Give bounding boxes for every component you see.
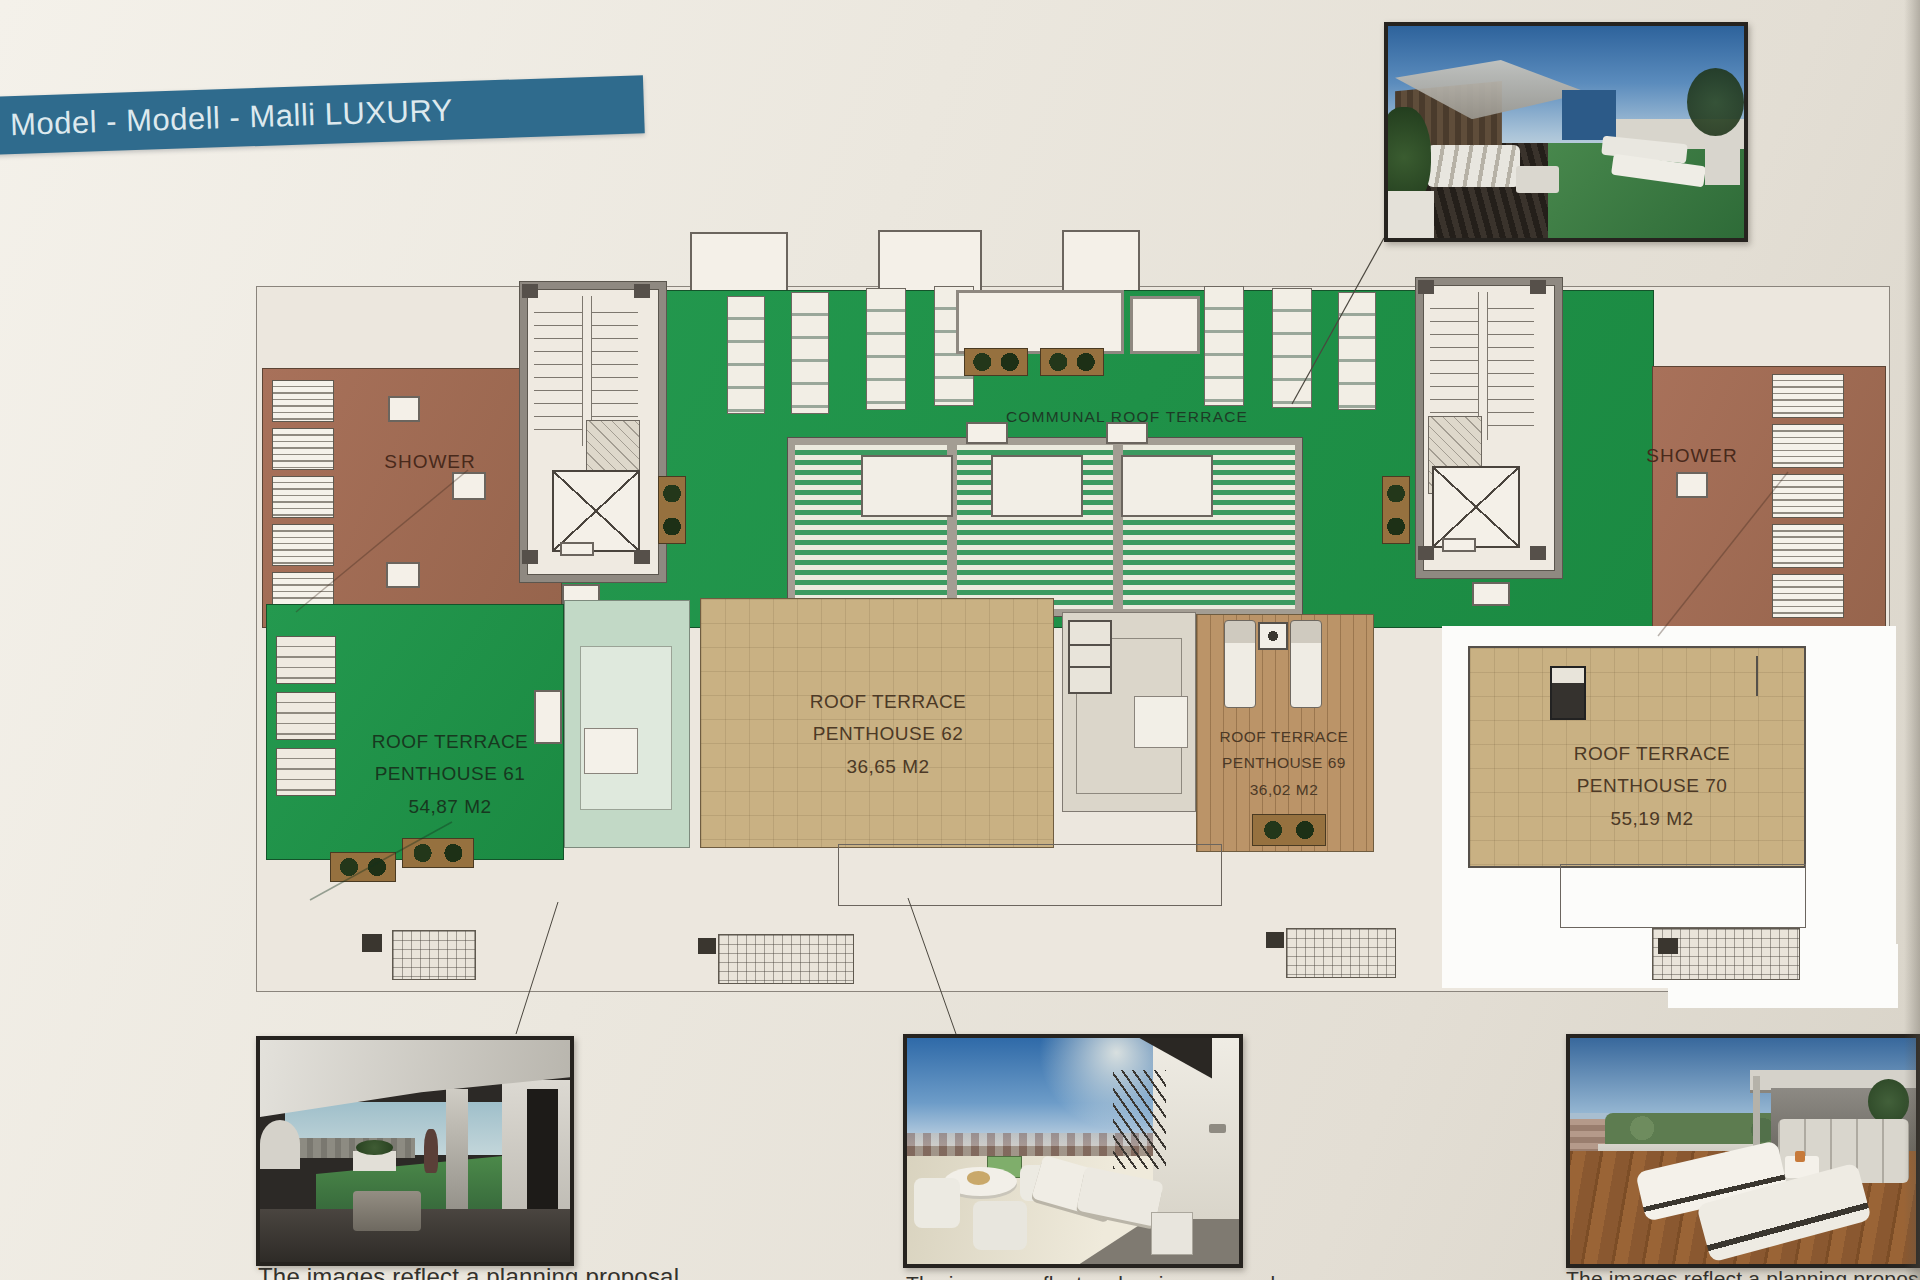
penthouse-69-label: ROOF TERRACE PENTHOUSE 69 36,02 M2 [1196, 724, 1372, 803]
column [1418, 280, 1434, 294]
skylight-slats [276, 636, 336, 684]
penthouse-70-label: ROOF TERRACE PENTHOUSE 70 55,19 M2 [1530, 738, 1774, 835]
title-banner-label: Model - Modell - Malli LUXURY [10, 93, 454, 144]
chair [914, 1178, 960, 1228]
chair [973, 1201, 1026, 1251]
tent-shape [260, 1120, 300, 1169]
deck-vent-grille [1772, 524, 1844, 568]
deck-vent-grille [1772, 574, 1844, 618]
elevator-right [1432, 466, 1520, 548]
vent-shaft [1550, 666, 1586, 720]
roof-bulkhead [1130, 296, 1200, 354]
deck-vent-grille [1772, 424, 1844, 468]
communal-pergola [788, 438, 1302, 616]
deck-hatch [1676, 472, 1708, 498]
penthouse-61-label: ROOF TERRACE PENTHOUSE 61 54,87 M2 [330, 726, 570, 823]
deck-vent-grille [272, 476, 334, 518]
photo-covered-terrace-render [256, 1036, 574, 1266]
column [634, 284, 650, 298]
planter-box [964, 348, 1028, 376]
plant [1868, 1079, 1910, 1124]
roof-hatch [1134, 696, 1188, 748]
deck-hatch [1472, 582, 1510, 606]
pergola-skylight [1121, 455, 1213, 517]
wall-lamp [1209, 1124, 1226, 1133]
pergola-vent [1106, 422, 1148, 444]
column [522, 284, 538, 298]
plan-outline-step [838, 844, 1222, 906]
skylight-slats [727, 296, 765, 414]
deck-vent-grille [272, 380, 334, 422]
ladder-symbol [1068, 620, 1112, 694]
deck-hatch [386, 562, 420, 588]
drain-box [362, 934, 382, 952]
plan-outline-step [1560, 864, 1806, 928]
photo-communal-terrace-render [1384, 22, 1748, 242]
planter-box [1252, 814, 1326, 846]
ottoman [353, 1191, 421, 1231]
drain-box [1658, 938, 1678, 954]
skylight-slats [1204, 286, 1244, 406]
shower-right-label: SHOWER [1612, 440, 1772, 472]
pergola-skylight [861, 455, 953, 517]
drain-box [698, 938, 716, 954]
outdoor-sofa [1427, 145, 1520, 187]
pergola-vent [966, 422, 1008, 444]
deck-vent-grille [1772, 374, 1844, 418]
title-banner: Model - Modell - Malli LUXURY [0, 75, 645, 155]
skylight-slats [1338, 292, 1376, 410]
column [634, 550, 650, 564]
deck-hatch [388, 396, 420, 422]
plant [1687, 68, 1744, 136]
planter-box [658, 476, 686, 544]
roof-hatch [584, 728, 638, 774]
column [1530, 546, 1546, 560]
column [446, 1089, 468, 1222]
photo-wood-deck-render [1566, 1034, 1920, 1268]
drain-grille [718, 934, 854, 984]
elevator-left [552, 470, 640, 552]
photo-sunny-terrace-render [903, 1034, 1243, 1268]
elevator-door [560, 542, 594, 556]
drain-box [1266, 932, 1284, 948]
sun-lounger-symbol [1224, 620, 1256, 708]
drain-grille [1286, 928, 1396, 978]
deck-vent-grille [272, 524, 334, 566]
person [424, 1129, 438, 1173]
roof-skylight-box [690, 232, 788, 298]
deck-vent-grille [1772, 474, 1844, 518]
vent-fan-symbol [1258, 622, 1288, 650]
column [1530, 280, 1546, 294]
skylight-slats [276, 748, 336, 796]
drain-grille [1652, 928, 1800, 980]
pergola-post [1753, 1076, 1760, 1148]
pergola-skylight [991, 455, 1083, 517]
drink [1795, 1151, 1805, 1162]
deck-vent-grille [272, 428, 334, 470]
scanned-brochure-page: { "banner": { "title": "Model - Modell -… [0, 0, 1920, 1280]
planter [1388, 191, 1434, 238]
skylight-slats [791, 292, 829, 414]
sun-lounger-symbol [1290, 620, 1322, 708]
skylight-slats [866, 288, 906, 410]
drain-grille [392, 930, 476, 980]
stair-railing [1113, 1070, 1166, 1169]
shower-left-label: SHOWER [350, 446, 510, 478]
stair-bulkhead [1562, 90, 1615, 141]
skylight-slats [276, 692, 336, 740]
caption-bottom-right: The images reflect a planning proposal [1566, 1267, 1920, 1280]
planter-box [1040, 348, 1104, 376]
penthouse-62-label: ROOF TERRACE PENTHOUSE 62 36,65 M2 [768, 686, 1008, 783]
communal-deck-right [1652, 366, 1886, 640]
breakfast-tray [967, 1171, 990, 1185]
roof-bulkhead [956, 290, 1124, 354]
planter-box [402, 838, 474, 868]
caption-bottom-left: The images reflect a planning proposal [258, 1263, 728, 1280]
planter-box [330, 852, 396, 882]
column [1418, 546, 1434, 560]
elevator-door [1442, 538, 1476, 552]
caption-bottom-middle: The images reflect a planning proposal [906, 1272, 1326, 1280]
column [522, 550, 538, 564]
shelf-unit [1151, 1212, 1193, 1255]
coffee-table [1516, 166, 1559, 194]
planter-box [1382, 476, 1410, 544]
skylight-slats [1272, 288, 1312, 408]
plan-tick [1756, 656, 1758, 696]
